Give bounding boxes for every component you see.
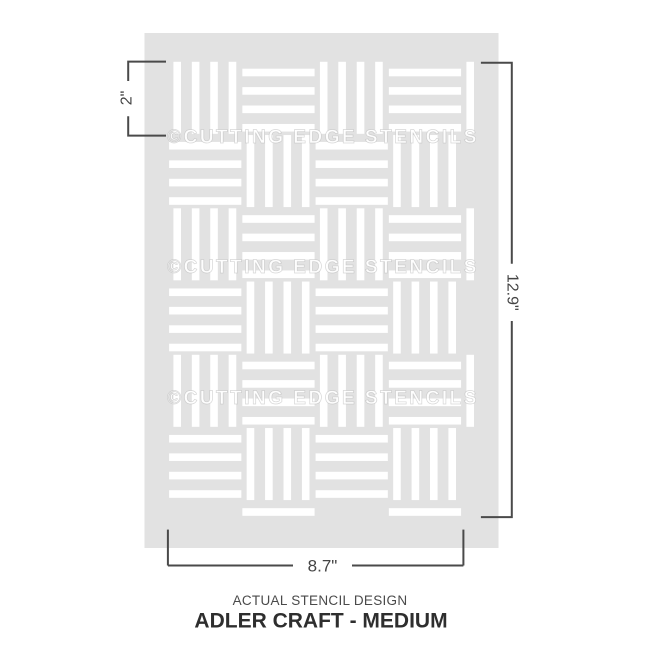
svg-text:©CUTTING EDGE STENCILS: ©CUTTING EDGE STENCILS [167, 257, 479, 278]
svg-text:2": 2" [119, 91, 136, 106]
svg-text:12.9": 12.9" [503, 274, 520, 311]
svg-text:©CUTTING EDGE STENCILS: ©CUTTING EDGE STENCILS [167, 388, 479, 409]
svg-text:ADLER CRAFT - MEDIUM: ADLER CRAFT - MEDIUM [194, 610, 447, 633]
svg-text:©CUTTING EDGE STENCILS: ©CUTTING EDGE STENCILS [167, 127, 479, 148]
svg-text:8.7": 8.7" [308, 557, 338, 576]
svg-text:ACTUAL STENCIL DESIGN: ACTUAL STENCIL DESIGN [233, 593, 408, 608]
